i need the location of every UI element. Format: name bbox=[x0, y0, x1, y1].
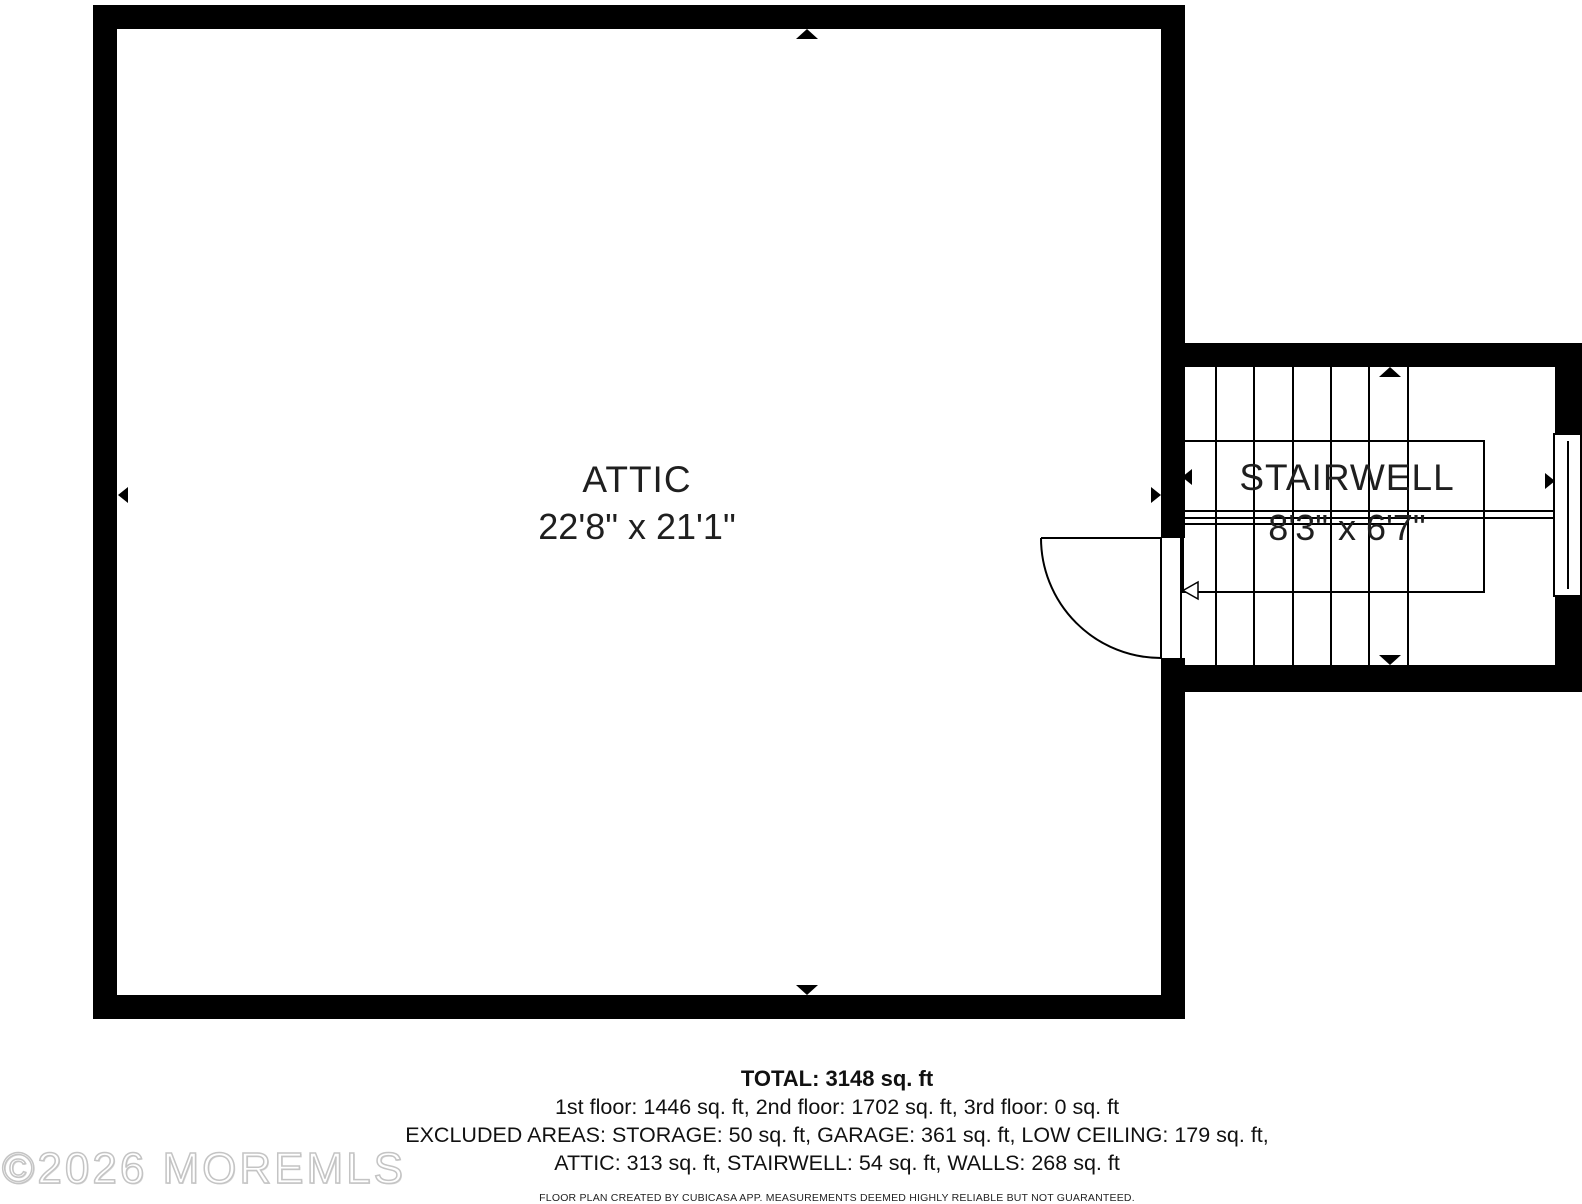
excluded-areas-text: EXCLUDED AREAS: STORAGE: 50 sq. ft, GARA… bbox=[237, 1123, 1437, 1148]
attic-top-marker-icon bbox=[796, 29, 818, 39]
door-opening bbox=[1160, 538, 1182, 658]
attic-room-name: ATTIC bbox=[437, 460, 837, 501]
stairwell-bottom-marker-icon bbox=[1379, 655, 1401, 665]
total-area-text: TOTAL: 3148 sq. ft bbox=[237, 1066, 1437, 1092]
attic-wall-right-below-door bbox=[1161, 658, 1185, 1019]
area-summary-block: TOTAL: 3148 sq. ft 1st floor: 1446 sq. f… bbox=[237, 1066, 1437, 1204]
stairwell-right-marker-icon bbox=[1545, 473, 1555, 489]
floor-plan-page: { "floor_plan": { "rooms": [ { "name": "… bbox=[0, 0, 1582, 1200]
stairwell-room-dimensions: 8'3" x 6'7" bbox=[1182, 508, 1512, 548]
attic-wall-left bbox=[93, 5, 117, 1019]
stairwell-wall-right-above-window bbox=[1555, 343, 1582, 433]
attic-wall-bottom bbox=[93, 995, 1185, 1019]
attic-left-marker-icon bbox=[118, 487, 128, 503]
attic-right-marker-icon bbox=[1151, 487, 1161, 503]
attic-room-dimensions: 22'8" x 21'1" bbox=[437, 507, 837, 547]
door-swing-arc bbox=[1041, 538, 1161, 658]
stairwell-wall-right-below-window bbox=[1555, 597, 1582, 692]
stairwell-top-marker-icon bbox=[1379, 367, 1401, 377]
attic-bottom-marker-icon bbox=[796, 985, 818, 995]
floor-areas-text: 1st floor: 1446 sq. ft, 2nd floor: 1702 … bbox=[237, 1095, 1437, 1120]
stairwell-room-name: STAIRWELL bbox=[1182, 458, 1512, 499]
window-center-line bbox=[1567, 441, 1569, 589]
stairwell-wall-bottom bbox=[1161, 665, 1582, 692]
attic-wall-top bbox=[93, 5, 1185, 29]
plan-vector-overlay bbox=[0, 0, 1582, 1200]
mls-watermark: ©2026 MOREMLS bbox=[2, 1144, 406, 1194]
stairwell-wall-top bbox=[1161, 343, 1582, 367]
excluded-areas-text2: ATTIC: 313 sq. ft, STAIRWELL: 54 sq. ft,… bbox=[237, 1151, 1437, 1176]
disclaimer-text: FLOOR PLAN CREATED BY CUBICASA APP. MEAS… bbox=[237, 1192, 1437, 1204]
